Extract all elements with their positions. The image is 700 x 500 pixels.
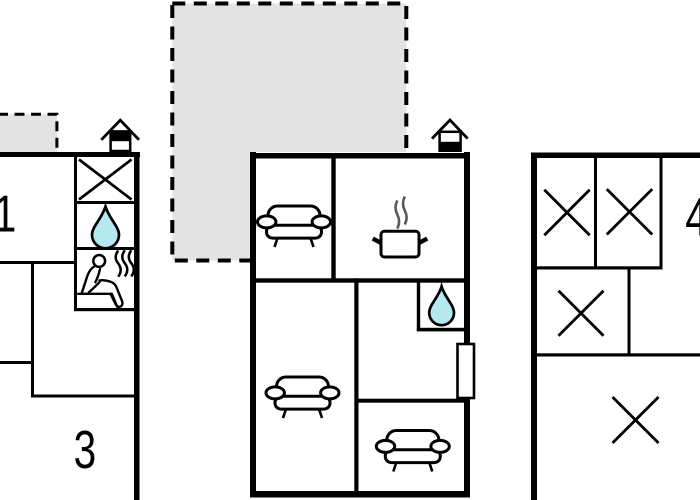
svg-text:3: 3 xyxy=(74,420,97,480)
svg-text:1: 1 xyxy=(0,184,16,243)
svg-text:4: 4 xyxy=(685,188,700,248)
